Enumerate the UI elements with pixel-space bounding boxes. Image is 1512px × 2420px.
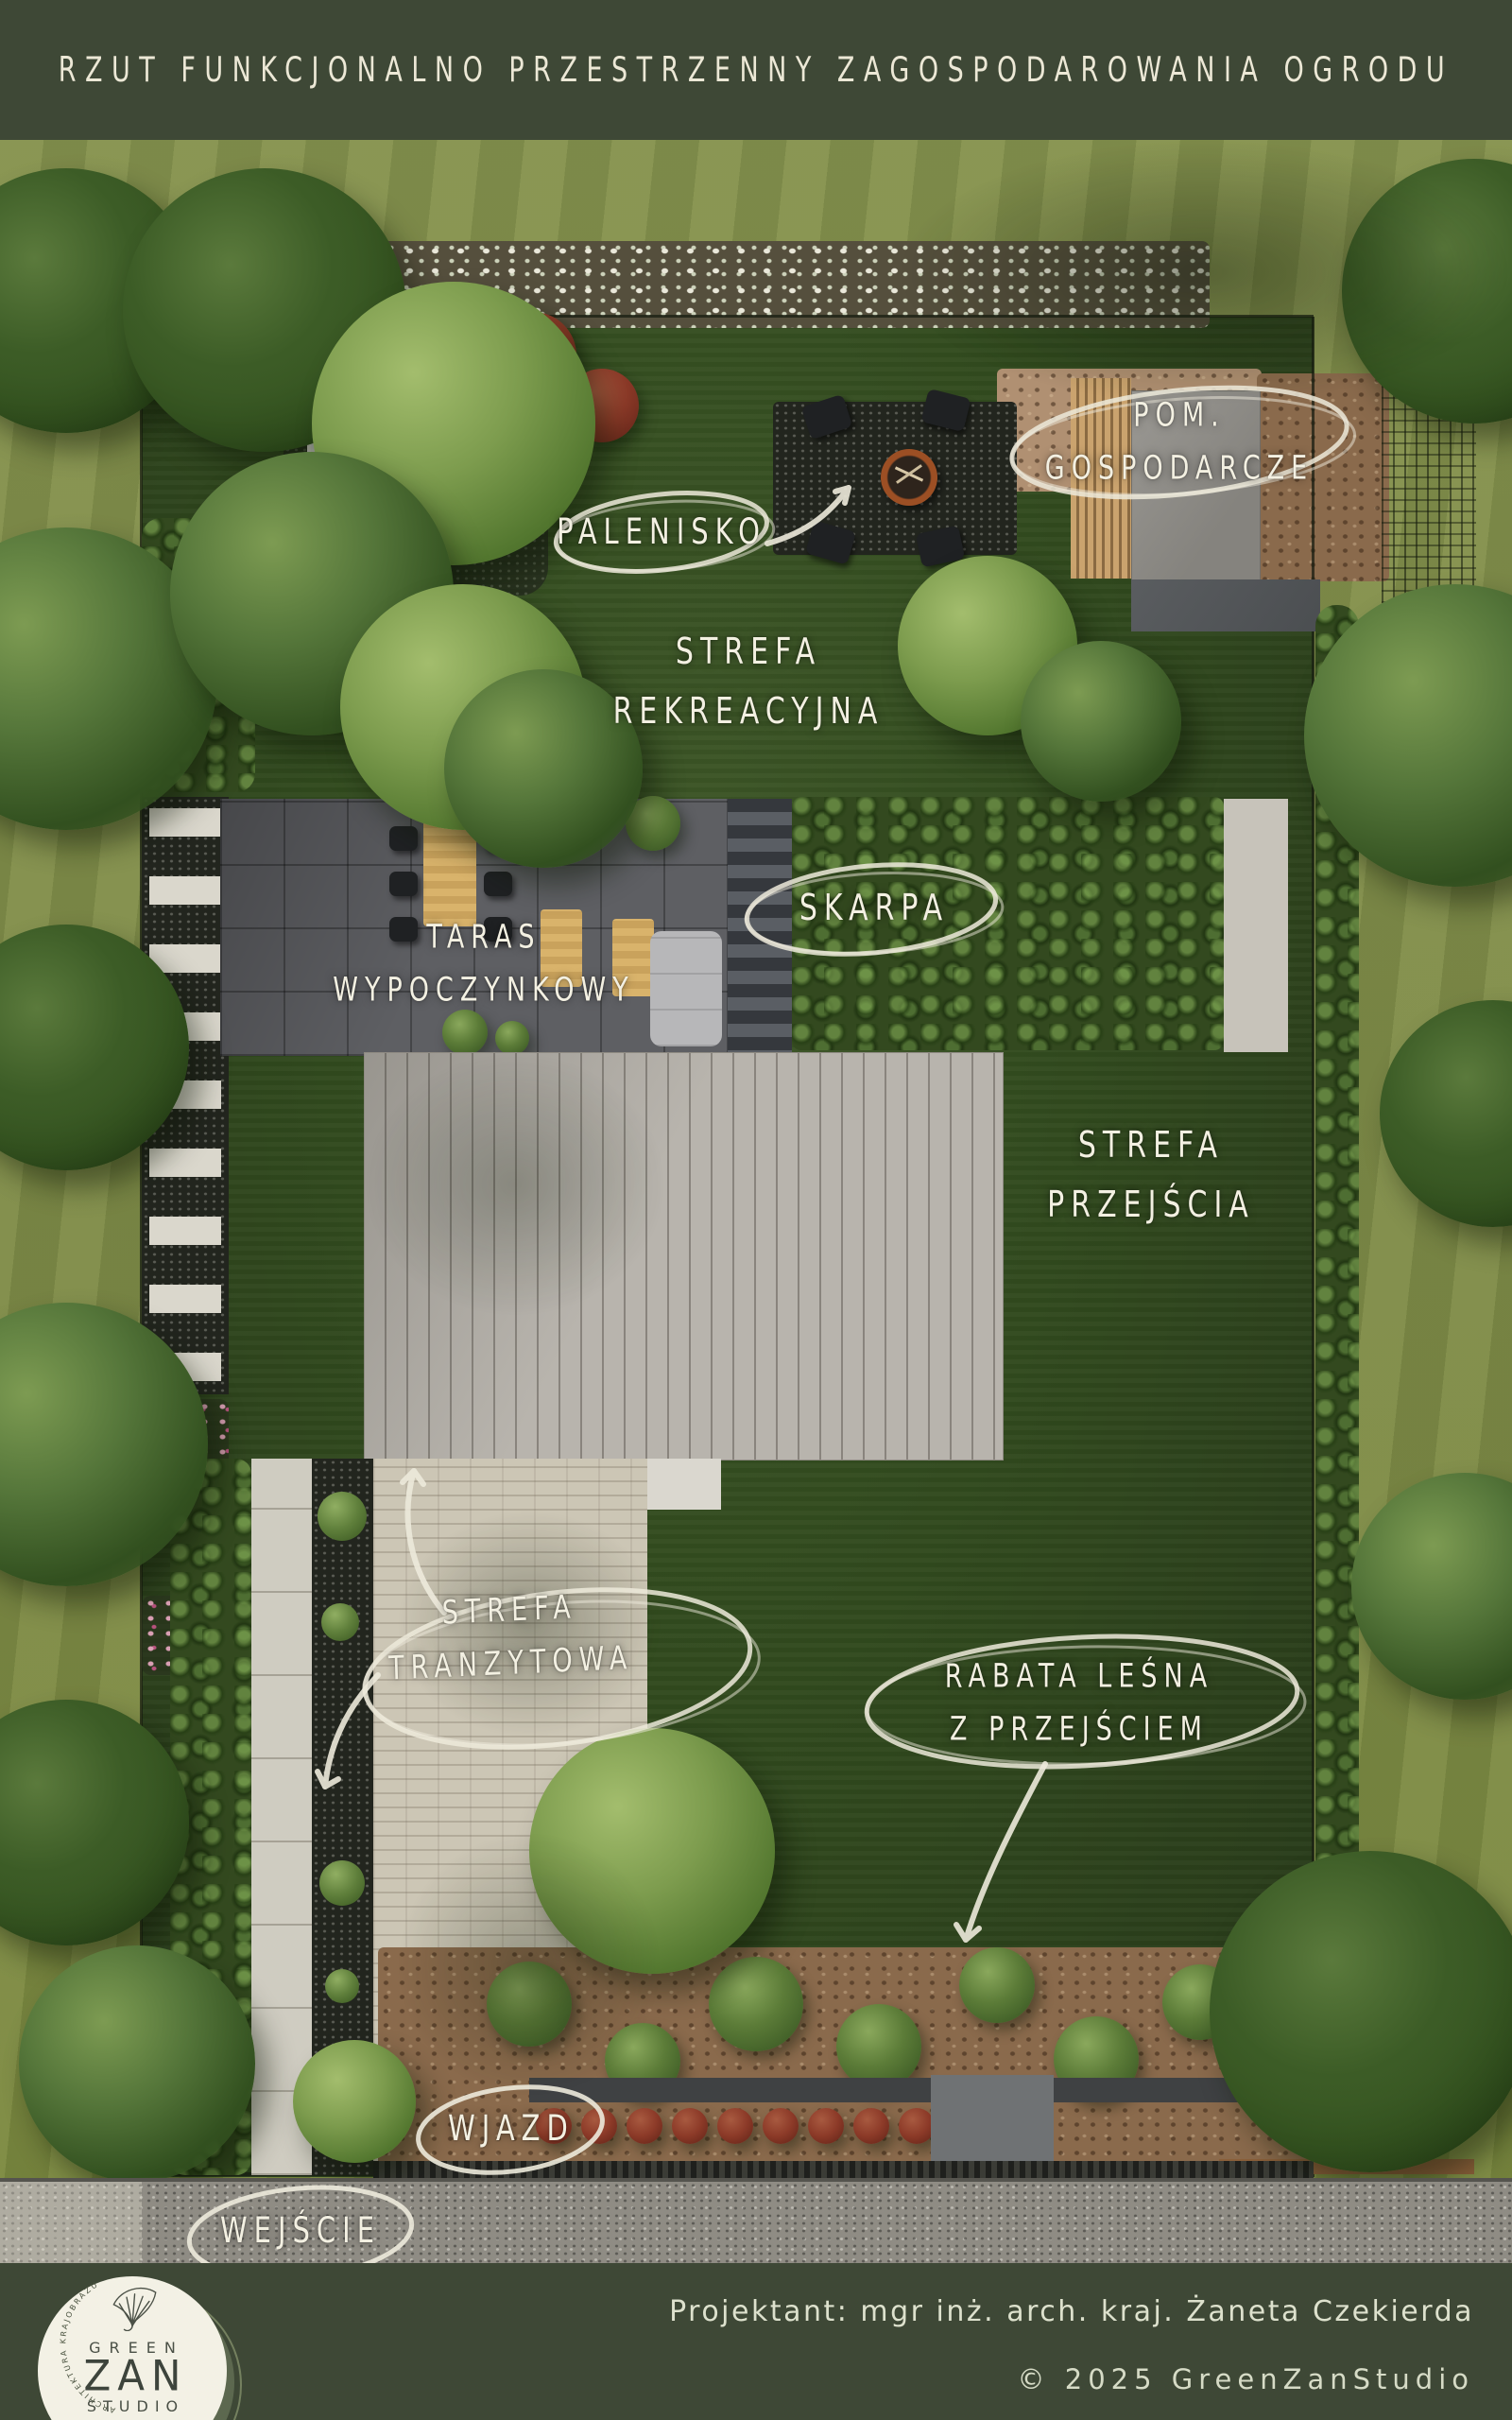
- entry-porch: [638, 1459, 721, 1510]
- garden-plan-poster: PALENISKO POM.GOSPODARCZE STREFAREKREACY…: [0, 0, 1512, 2420]
- curb-line: [0, 2178, 1512, 2182]
- utility-paving: [1131, 579, 1320, 631]
- red-shrub: [627, 2108, 662, 2144]
- red-shrub: [853, 2108, 889, 2144]
- header: RZUT FUNKCJONALNO PRZESTRZENNY ZAGOSPODA…: [0, 0, 1512, 140]
- dining-chair: [484, 872, 512, 896]
- red-shrub: [717, 2108, 753, 2144]
- svg-text:ARCHITEKTURA KRAJOBRAZU: ARCHITEKTURA KRAJOBRAZU: [58, 2279, 116, 2416]
- label-strefa-rekreacyjna: STREFAREKREACYJNA: [613, 624, 885, 741]
- forest-bed-shrub: [959, 1947, 1035, 2023]
- tree-canopy: [1380, 1000, 1512, 1227]
- topiary-ball: [321, 1603, 359, 1641]
- topiary-ball: [319, 1860, 365, 1906]
- tree-canopy: [293, 2040, 416, 2163]
- label-wejscie: WEJŚCIE: [220, 2203, 381, 2259]
- logo-ring-text: ARCHITEKTURA KRAJOBRAZU: [28, 2267, 236, 2420]
- dining-chair: [389, 872, 418, 896]
- road-light-segment: [0, 2182, 142, 2263]
- fire-bowl: [881, 449, 937, 506]
- red-shrub: [672, 2108, 708, 2144]
- topiary-ball: [318, 1492, 367, 1541]
- label-wjazd: WJAZD: [448, 2100, 575, 2157]
- label-skarpa: SKARPA: [799, 880, 949, 939]
- topiary-ball: [325, 1969, 359, 2003]
- gravel-path: [1224, 799, 1288, 1052]
- dining-chair: [389, 826, 418, 851]
- designer-credit: Projektant: mgr inż. arch. kraj. Żaneta …: [669, 2295, 1474, 2328]
- outdoor-sofa: [650, 931, 722, 1046]
- label-pom-gospodarcze: POM.GOSPODARCZE: [1045, 389, 1314, 495]
- tree-canopy: [1021, 641, 1181, 802]
- red-shrub: [581, 2108, 617, 2144]
- label-strefa-przejscia: STREFAPRZEJŚCIA: [1047, 1117, 1255, 1235]
- tree-shadow: [397, 1832, 661, 2097]
- red-shrub: [899, 2108, 935, 2144]
- red-shrub: [808, 2108, 844, 2144]
- utility-pad: [931, 2075, 1054, 2169]
- label-strefa-tranzytowa: STREFATRANZYTOWA: [387, 1579, 634, 1695]
- garden-stairs: [728, 799, 792, 1056]
- tree-canopy: [1210, 1851, 1512, 2172]
- label-taras-wypoczynkowy: TARASWYPOCZYNKOWY: [333, 911, 634, 1017]
- label-palenisko: PALENISKO: [557, 504, 766, 561]
- label-rabata-lesna: RABATA LEŚNAZ PRZEJŚCIEM: [945, 1651, 1213, 1756]
- tree-shadow: [898, 140, 1512, 405]
- paver-edge-band: [529, 2078, 1314, 2102]
- copyright: © 2025 GreenZanStudio: [1018, 2363, 1474, 2395]
- tree-canopy: [1351, 1473, 1512, 1700]
- tree-canopy: [19, 1945, 255, 2182]
- red-shrub: [763, 2108, 799, 2144]
- tree-shadow: [364, 1052, 666, 1317]
- potted-plant: [495, 1021, 529, 1055]
- forest-bed-shrub: [709, 1957, 803, 2051]
- forest-bed-shrub: [836, 2004, 921, 2089]
- page-title: RZUT FUNKCJONALNO PRZESTRZENNY ZAGOSPODA…: [59, 50, 1453, 90]
